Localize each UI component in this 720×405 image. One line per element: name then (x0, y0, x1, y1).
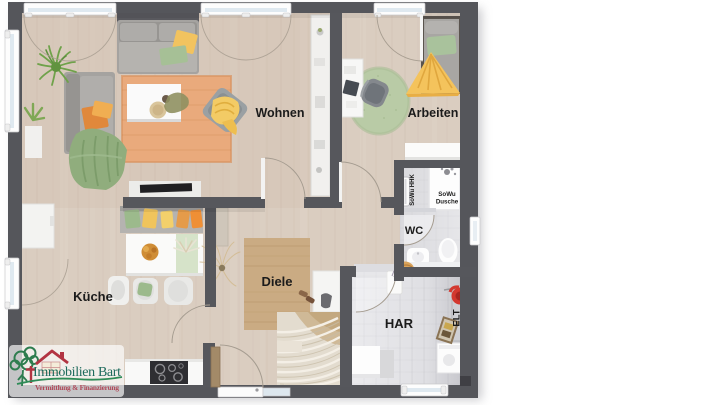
svg-text:Diele: Diele (261, 274, 292, 289)
svg-text:HAR: HAR (385, 316, 414, 331)
svg-text:Immobilien Bart: Immobilien Bart (33, 365, 121, 380)
svg-text:SoWu HHK: SoWu HHK (410, 174, 416, 206)
svg-text:SoWu: SoWu (438, 191, 456, 198)
svg-text:Arbeiten: Arbeiten (408, 106, 459, 120)
svg-text:Vermittlung & Finanzierung: Vermittlung & Finanzierung (35, 383, 119, 392)
svg-text:WC: WC (405, 225, 423, 237)
svg-text:ELT: ELT (452, 309, 463, 326)
svg-text:Küche: Küche (73, 289, 113, 304)
svg-text:Wohnen: Wohnen (255, 106, 304, 120)
svg-text:Dusche: Dusche (436, 199, 459, 206)
